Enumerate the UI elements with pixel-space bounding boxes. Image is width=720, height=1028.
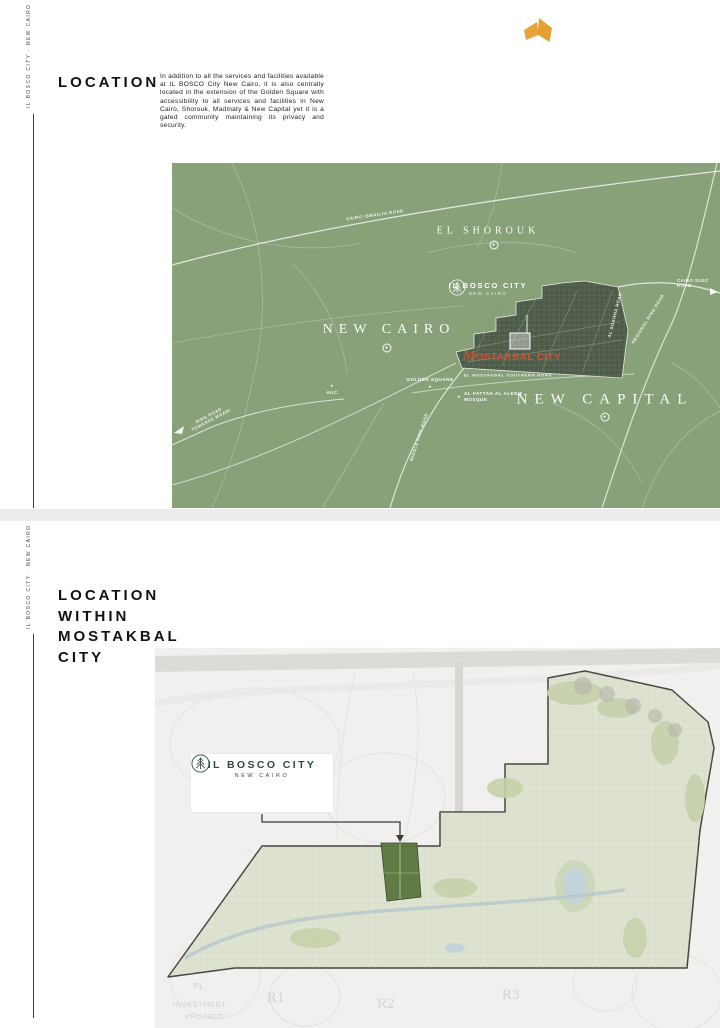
vertical-brand-text-bottom: IL BOSCO CITY · NEW CAIRO: [26, 545, 32, 629]
label-mosque: AL FATTAH AL ALEEM MOSQUE: [464, 391, 522, 402]
label-suez-line2: ROAD: [677, 283, 709, 288]
el-shorouk-marker-icon: [490, 241, 499, 250]
vertical-rule-top: [33, 114, 34, 508]
card-arrow: [262, 814, 404, 842]
bosco-parcel-map2: [381, 843, 421, 901]
card-title: IL BOSCO CITY: [191, 759, 333, 771]
map2-top-road: [155, 648, 720, 672]
section2-heading-line1: LOCATION: [58, 586, 180, 607]
label-new-cairo: NEW CAIRO: [323, 322, 456, 338]
section1-paragraph: In addition to all the services and faci…: [160, 73, 324, 130]
label-cairo-suez: CAIRO SUEZ ROAD: [677, 278, 709, 289]
ghost-label-r3: R3: [502, 987, 520, 1004]
ghost-label-r2: R2: [377, 996, 395, 1013]
label-el-shorouk: EL SHOROUK: [437, 226, 540, 237]
brochure-page: IL BOSCO CITY · NEW CAIRO LOCATION In ad…: [0, 0, 720, 1028]
map2-vertical-road: [455, 663, 463, 828]
mostakbal-outline-area: [168, 671, 714, 977]
bosco-map1-callout: IL BOSCO CITY NEW CAIRO: [449, 279, 528, 296]
vertical-rule-bottom: [33, 634, 34, 1018]
new-cairo-marker-icon: [383, 344, 392, 353]
pine-tree-logo-icon: [191, 754, 210, 773]
section2-heading-line2: WITHIN: [58, 607, 180, 628]
mostakbal-city-master-plan-map: IL BOSCO CITY NEW CAIRO P1 INVESTMENT PR…: [155, 648, 720, 1028]
label-auc: AUC: [326, 390, 337, 396]
golden-leaf-logo-icon: [521, 15, 554, 45]
regional-location-map: CAIRO ISMAILYA ROAD EL SHOROUK IL BOSCO …: [172, 163, 720, 508]
card-subtitle: NEW CAIRO: [191, 773, 333, 779]
label-golden-square: GOLDEN SQUARE: [406, 377, 453, 383]
bosco-parcel-highlight: [510, 333, 530, 349]
maadi-arrow-icon: [174, 426, 184, 434]
label-new-capital: NEW CAPITAL: [517, 392, 694, 409]
label-mostakbal-city: MOSTAKBAL CITY: [463, 349, 561, 365]
ghost-label-p1: P1: [193, 982, 203, 991]
section-divider: [0, 509, 720, 521]
ghost-label-r1: R1: [267, 990, 285, 1007]
vertical-brand-text-top: IL BOSCO CITY · NEW CAIRO: [26, 24, 32, 108]
bosco-label-card: IL BOSCO CITY NEW CAIRO: [191, 754, 333, 812]
label-mosque-line2: MOSQUE: [464, 397, 522, 403]
bosco-map1-subtitle: NEW CAIRO: [449, 291, 528, 296]
section1-heading: LOCATION: [58, 73, 159, 94]
new-capital-marker-icon: [601, 413, 610, 422]
map2-graphics: [155, 648, 720, 1028]
suez-arrow-icon: [710, 288, 718, 295]
label-southern-road: EL MOSTAKBAL SOUTHERN ROAD: [464, 372, 553, 377]
ghost-label-investment: INVESTMENT: [173, 1000, 226, 1009]
label-mosque-line1: AL FATTAH AL ALEEM: [464, 391, 522, 397]
lake: [563, 868, 587, 904]
section2-heading-line3: MOSTAKBAL: [58, 627, 180, 648]
ghost-label-project: PROJECT: [185, 1012, 224, 1021]
